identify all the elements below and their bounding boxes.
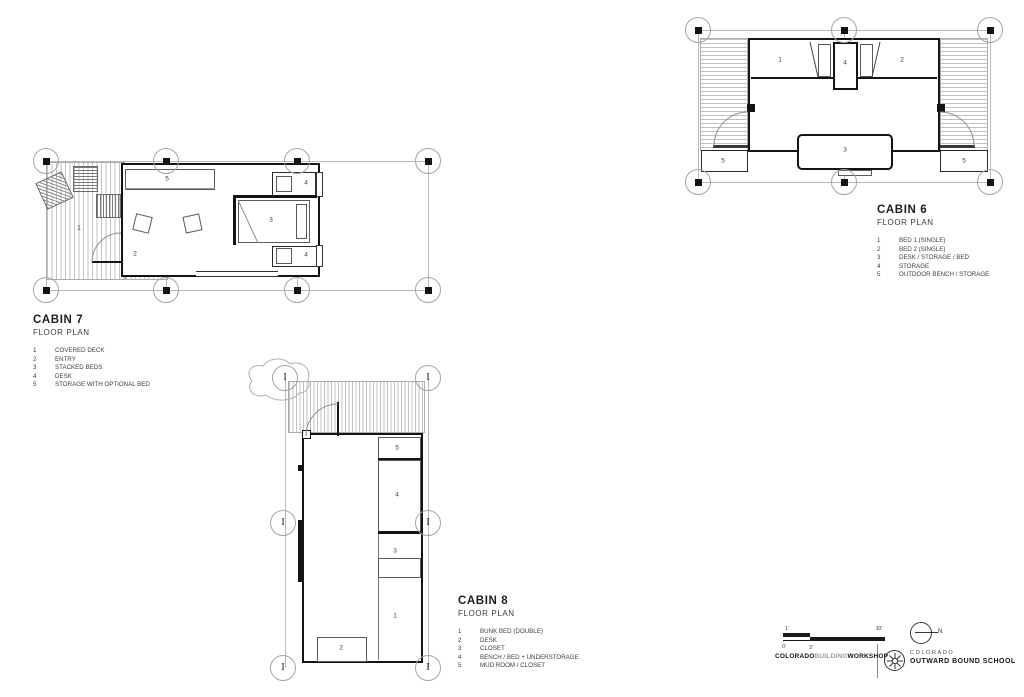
legend-num: 3 <box>458 645 480 654</box>
legend-label: DESK <box>480 637 497 646</box>
legend-row: 4BENCH / BED + UNDERSTORAGE <box>458 654 618 663</box>
scale-label-3ft: 3' <box>809 645 813 651</box>
legend-num: 1 <box>458 628 480 637</box>
grid-line <box>698 30 699 182</box>
legend-label: MUD ROOM / CLOSET <box>480 662 545 671</box>
ibeam-column-icon: I <box>283 373 286 383</box>
deck-hatch <box>700 38 748 151</box>
window <box>316 245 323 267</box>
legend-label: STORAGE <box>899 263 929 272</box>
grid-line <box>428 161 429 290</box>
column-marker <box>831 169 857 195</box>
room-label-bench: 4 <box>395 492 399 499</box>
legend-num: 2 <box>877 246 899 255</box>
room-label-desk: 3 <box>843 147 847 154</box>
column-marker <box>33 277 59 303</box>
door-leaf <box>713 145 748 148</box>
legend-num: 4 <box>33 373 55 382</box>
column-icon <box>425 287 432 294</box>
legend-num: 2 <box>33 356 55 365</box>
column-icon <box>425 158 432 165</box>
column-icon <box>43 287 50 294</box>
grid-line <box>990 30 991 182</box>
legend-label: BENCH / BED + UNDERSTORAGE <box>480 654 579 663</box>
lounge-chair <box>182 213 202 233</box>
legend-label: STACKED BEDS <box>55 364 102 373</box>
door-jamb <box>302 430 311 439</box>
nook-wall <box>233 195 236 245</box>
legend-label: CLOSET <box>480 645 505 654</box>
legend-row: 3CLOSET <box>458 645 618 654</box>
ibeam-column-icon: I <box>426 518 429 528</box>
column-icon <box>841 27 848 34</box>
room-label-bed2: 2 <box>900 57 904 64</box>
ibeam-column-icon: I <box>426 663 429 673</box>
legend-row: 4DESK <box>33 373 233 382</box>
room-label-deck: 1 <box>77 225 81 232</box>
legend-row: 1COVERED DECK <box>33 347 233 356</box>
column-marker: I <box>272 365 298 391</box>
column-icon <box>695 179 702 186</box>
legend-label: COVERED DECK <box>55 347 105 356</box>
deck-hatch <box>288 381 425 433</box>
column-marker <box>415 277 441 303</box>
column-icon <box>163 158 170 165</box>
closet <box>818 44 831 77</box>
legend-row: 2BED 2 (SINGLE) <box>877 246 1022 255</box>
legend-label: BED 1 (SINGLE) <box>899 237 945 246</box>
cabin7-title: CABIN 7 <box>33 314 83 326</box>
column-marker <box>284 148 310 174</box>
legend-num: 5 <box>877 271 899 280</box>
cabin7-legend: 1COVERED DECK 2ENTRY 3STACKED BEDS 4DESK… <box>33 347 233 390</box>
room-label-desk: 4 <box>304 252 308 259</box>
room-label-storage: 5 <box>165 176 169 183</box>
column-icon <box>841 179 848 186</box>
legend-label: BED 2 (SINGLE) <box>899 246 945 255</box>
cabin8-subtitle: FLOOR PLAN <box>458 609 515 618</box>
cabin8-legend: 1BUNK BED (DOUBLE) 2DESK 3CLOSET 4BENCH … <box>458 628 618 671</box>
legend-num: 5 <box>458 662 480 671</box>
window-slider <box>298 520 302 582</box>
legend-label: DESK / STORAGE / BED <box>899 254 969 263</box>
legend-num: 1 <box>877 237 899 246</box>
firm-part3: WORKSHOP <box>848 653 889 660</box>
room-label-desk: 2 <box>339 645 343 652</box>
column-marker: I <box>415 655 441 681</box>
nook-wall <box>233 195 317 198</box>
legend-num: 4 <box>877 263 899 272</box>
wall-column <box>747 104 755 112</box>
legend-label: DESK <box>55 373 72 382</box>
legend-num: 1 <box>33 347 55 356</box>
room-label-bench: 5 <box>962 158 966 165</box>
window <box>196 271 278 277</box>
column-marker <box>153 277 179 303</box>
legend-num: 5 <box>33 381 55 390</box>
firm-part1: COLORADO <box>775 653 815 660</box>
room-label-bed1: 1 <box>778 57 782 64</box>
column-icon <box>987 179 994 186</box>
cabin6-legend: 1BED 1 (SINGLE) 2BED 2 (SINGLE) 3DESK / … <box>877 237 1022 280</box>
door-leaf <box>940 145 975 148</box>
legend-num: 3 <box>877 254 899 263</box>
legend-label: OUTDOOR BENCH / STORAGE <box>899 271 989 280</box>
column-marker <box>977 169 1003 195</box>
wall-column <box>937 104 945 112</box>
interior-wall <box>378 531 421 534</box>
room-label-bench: 5 <box>721 158 725 165</box>
legend-num: 4 <box>458 654 480 663</box>
client-name-line1: COLORADO <box>910 650 954 656</box>
room-label-beds: 3 <box>269 217 273 224</box>
client-name-line2: OUTWARD BOUND SCHOOL <box>910 658 1016 665</box>
north-label: N <box>938 629 942 635</box>
room-label-entry: 2 <box>133 251 137 258</box>
legend-row: 3DESK / STORAGE / BED <box>877 254 1022 263</box>
column-icon <box>294 158 301 165</box>
legend-row: 1BED 1 (SINGLE) <box>877 237 1022 246</box>
column-marker <box>153 148 179 174</box>
legend-label: ENTRY <box>55 356 76 365</box>
column-marker <box>685 17 711 43</box>
room-label-closet: 3 <box>393 548 397 555</box>
legend-num: 3 <box>33 364 55 373</box>
column-marker <box>977 17 1003 43</box>
entry-mat <box>96 194 121 218</box>
legend-num: 2 <box>458 637 480 646</box>
compass-logo-icon <box>884 650 905 671</box>
ibeam-column-icon: I <box>426 373 429 383</box>
column-marker: I <box>270 655 296 681</box>
door-leaf <box>337 402 339 436</box>
legend-row: 5STORAGE WITH OPTIONAL BED <box>33 381 233 390</box>
scale-label-0ft: 0' <box>782 644 786 650</box>
cabin8-title: CABIN 8 <box>458 595 508 607</box>
cabin7-subtitle: FLOOR PLAN <box>33 328 90 337</box>
column-marker: I <box>270 510 296 536</box>
legend-row: 2ENTRY <box>33 356 233 365</box>
scale-label-1ft: 1' <box>785 626 789 632</box>
closet <box>860 44 873 77</box>
grid-line <box>46 290 428 291</box>
legend-row: 5OUTDOOR BENCH / STORAGE <box>877 271 1022 280</box>
column-marker <box>685 169 711 195</box>
closet-drawer <box>378 558 421 578</box>
cabin6-title: CABIN 6 <box>877 204 927 216</box>
scale-bar-segment <box>810 637 885 641</box>
deck-grate <box>73 166 98 192</box>
desk-chair <box>276 176 292 192</box>
legend-row: 2DESK <box>458 637 618 646</box>
column-marker: I <box>415 510 441 536</box>
legend-label: BUNK BED (DOUBLE) <box>480 628 543 637</box>
desk-chair <box>276 248 292 264</box>
north-arrow-line <box>915 632 938 633</box>
legend-row: 5MUD ROOM / CLOSET <box>458 662 618 671</box>
room-label-bunk: 1 <box>393 613 397 620</box>
legend-row: 4STORAGE <box>877 263 1022 272</box>
column-icon <box>163 287 170 294</box>
room-label-storage: 4 <box>843 60 847 67</box>
north-arrow-circle <box>910 622 932 644</box>
column-icon <box>294 287 301 294</box>
column-icon <box>987 27 994 34</box>
column-marker: I <box>415 365 441 391</box>
column-marker <box>415 148 441 174</box>
legend-row: 3STACKED BEDS <box>33 364 233 373</box>
storage-shelf-line <box>125 188 215 189</box>
legend-label: STORAGE WITH OPTIONAL BED <box>55 381 150 390</box>
firm-wordmark: COLORADOBUILDINGWORKSHOP <box>775 653 888 660</box>
room-label-mudroom: 5 <box>395 445 399 452</box>
cabin6-subtitle: FLOOR PLAN <box>877 218 934 227</box>
titleblock-divider <box>877 644 878 678</box>
window <box>316 172 323 197</box>
column-marker <box>284 277 310 303</box>
column-icon <box>43 158 50 165</box>
ibeam-column-icon: I <box>281 518 284 528</box>
ibeam-column-icon: I <box>281 663 284 673</box>
deck-hatch <box>940 38 988 151</box>
mudroom-closet <box>378 437 421 460</box>
room-label-desk: 4 <box>304 180 308 187</box>
column-marker <box>831 17 857 43</box>
scale-label-10ft: 10' <box>876 626 883 632</box>
column-marker <box>33 148 59 174</box>
drawing-sheet: 1 2 3 4 4 5 CABIN 7 FLOOR PLAN 1COVERED … <box>0 0 1024 697</box>
bed-pillow <box>296 204 307 239</box>
firm-part2: BUILDING <box>815 653 848 660</box>
window-slider <box>298 465 302 471</box>
legend-row: 1BUNK BED (DOUBLE) <box>458 628 618 637</box>
door-leaf <box>92 261 121 263</box>
column-icon <box>695 27 702 34</box>
scale-bar-segment <box>783 633 810 637</box>
